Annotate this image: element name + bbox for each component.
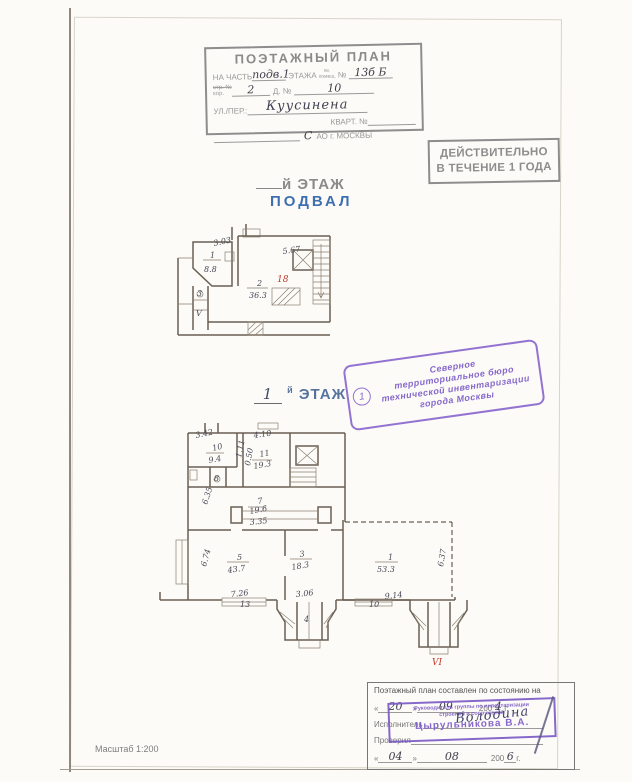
date2-century: 200 [491, 754, 504, 763]
basement-heading: й ЭТАЖ ПОДВАЛ [256, 176, 353, 210]
floor-part-value: подв.1 [252, 68, 290, 82]
label-d-no: Д. № [273, 86, 292, 95]
date2-day: 04 [388, 750, 402, 763]
document-title: ПОЭТАЖНЫЙ ПЛАН [212, 48, 414, 67]
date2-g: г. [516, 754, 520, 763]
label-pomesch: помещ. [319, 73, 336, 79]
first-floor-sup: й [287, 385, 294, 395]
street-name-value: Куусинена [266, 97, 349, 114]
label-ao-moskvy: АО г. МОСКВЫ [316, 131, 372, 141]
building-no-value: 2 [247, 83, 254, 96]
validity-stamp: ДЕЙСТВИТЕЛЬНО В ТЕЧЕНИЕ 1 ГОДА [428, 138, 561, 184]
label-kor: кор. [213, 91, 224, 97]
first-floor-number: 1 [254, 385, 282, 404]
basement-floor-suffix: й ЭТАЖ [282, 176, 345, 193]
footer-title: Поэтажный план составлен по состоянию на [374, 686, 568, 695]
validity-stamp-line2: В ТЕЧЕНИЕ 1 ГОДА [430, 160, 558, 177]
label-no1: № [338, 70, 347, 79]
date2-year: 6 [507, 750, 514, 763]
label-street: УЛ./ПЕР.: [213, 106, 247, 116]
bureau-stamp-number: 1 [352, 386, 372, 406]
header-form-box: ПОЭТАЖНЫЙ ПЛАН НА ЧАСТЬ подв.1 ЭТАЖА кв.… [204, 43, 424, 136]
ao-letter-value: С [304, 130, 313, 141]
premises-no-value: 13б Б [354, 65, 387, 79]
page-left-edge [69, 8, 71, 772]
label-etazha: ЭТАЖА [288, 71, 317, 81]
date2-month: 08 [445, 750, 459, 763]
label-kvart-no: КВАРТ. № [331, 117, 368, 127]
house-no-value: 10 [327, 81, 341, 94]
label-na-chast: НА ЧАСТЬ [213, 72, 253, 82]
first-floor-heading: 1 й ЭТАЖ [254, 385, 346, 404]
first-floor-suffix: ЭТАЖ [299, 386, 346, 403]
basement-name: ПОДВАЛ [270, 193, 353, 210]
scale-label: Масштаб 1:200 [95, 744, 159, 754]
